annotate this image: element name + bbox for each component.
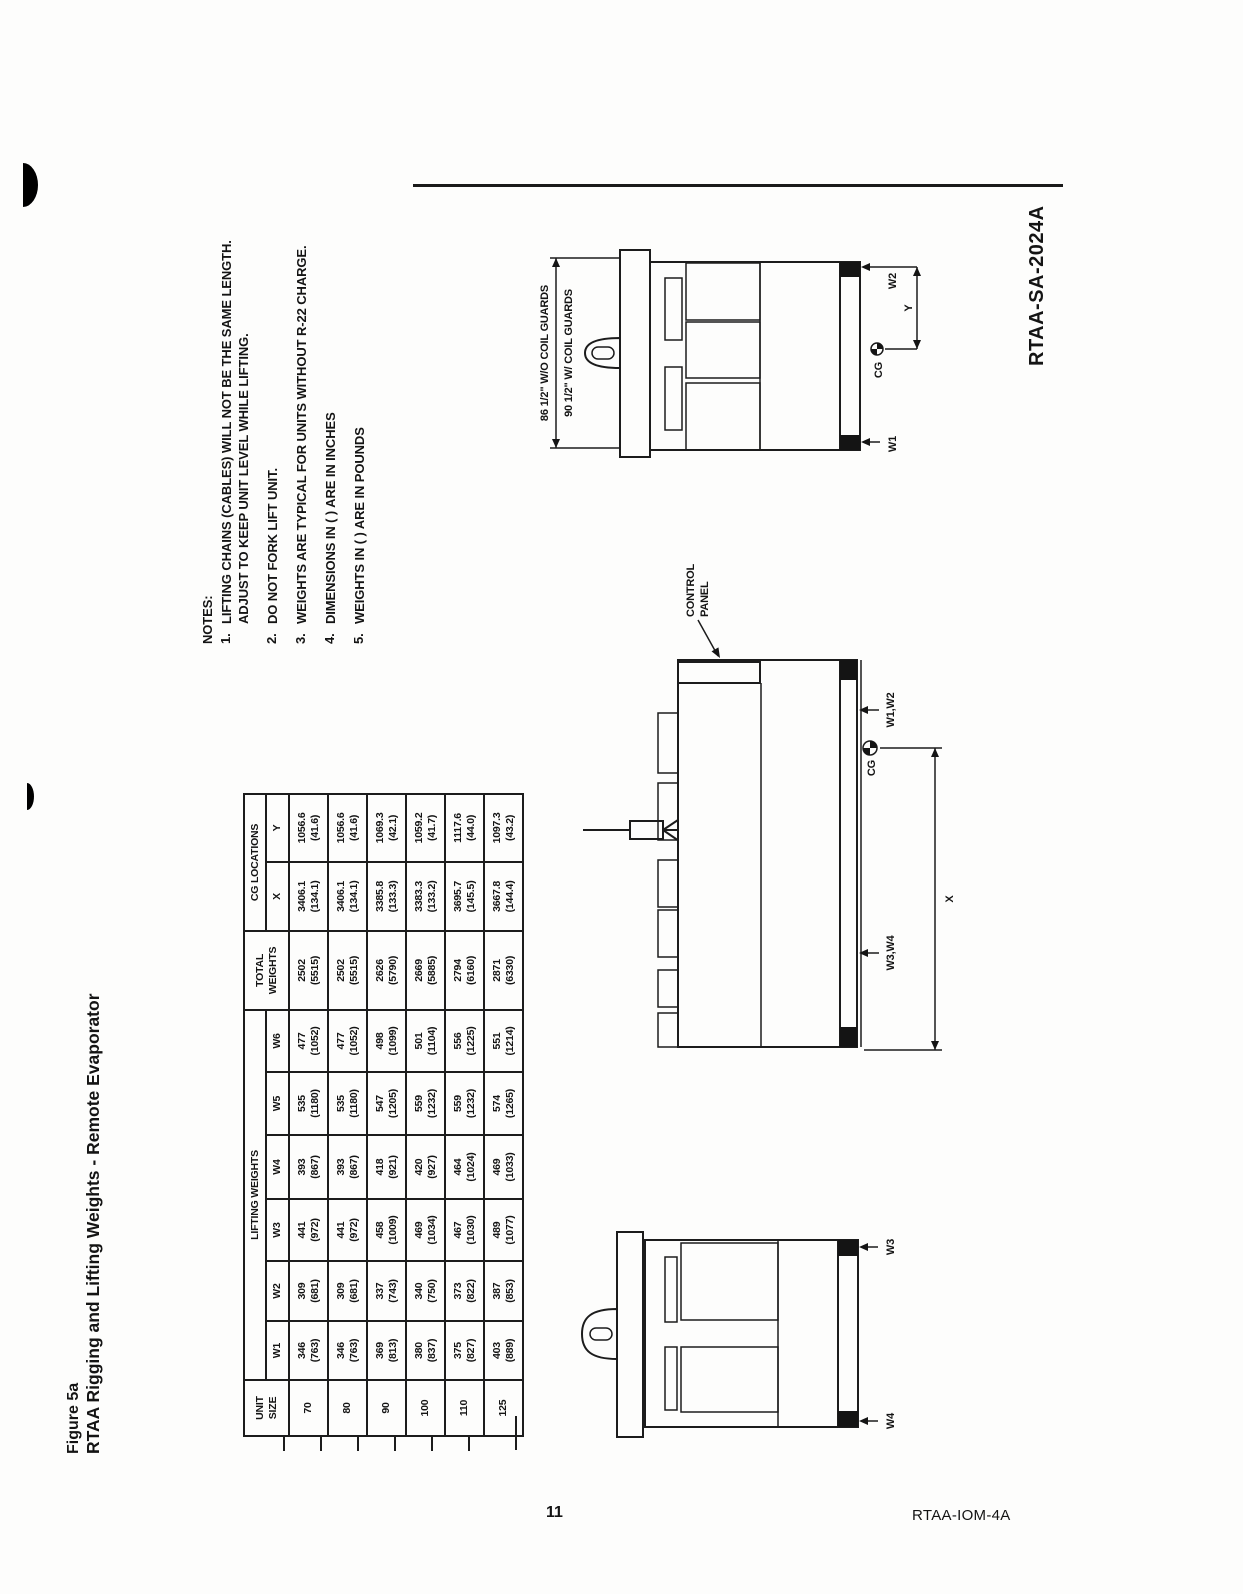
note-item: 2. DO NOT FORK LIFT UNIT. — [264, 184, 281, 644]
table-cell: 337 (743) — [367, 1261, 406, 1321]
base-rail — [840, 660, 857, 1047]
note-line: ADJUST TO KEEP UNIT LEVEL WHILE LIFTING. — [235, 240, 252, 624]
table-cell: 2502 (5515) — [289, 931, 328, 1010]
landscape-sheet: Figure 5a RTAA Rigging and Lifting Weigh… — [0, 0, 1243, 1594]
table-cell: 1056.6 (41.6) — [328, 794, 367, 862]
drawing-number: RTAA-SA-2024A — [1026, 205, 1049, 366]
table-cell: 441 (972) — [328, 1199, 367, 1261]
table-cell: 2669 (5885) — [406, 931, 445, 1010]
table-stub — [394, 1437, 396, 1451]
unit-size-cell: 80 — [328, 1380, 367, 1436]
table-cell: 2626 (5790) — [367, 931, 406, 1010]
table-cell: 420 (927) — [406, 1135, 445, 1199]
table-cell: 1056.6 (41.6) — [289, 794, 328, 862]
note-item: 5. WEIGHTS IN ( ) ARE IN POUNDS — [351, 184, 368, 644]
table-stub — [357, 1437, 359, 1451]
cg-label: CG — [873, 362, 885, 378]
table-cell: 369 (813) — [367, 1321, 406, 1380]
figure-number: Figure 5a — [64, 993, 83, 1454]
dim-with-guards-label: 90 1/2" W/ COIL GUARDS — [563, 289, 575, 417]
table-cell: 2871 (6330) — [484, 931, 523, 1010]
table-row: 100 380 (837) 340 (750) 469 (1034) 420 (… — [406, 794, 445, 1436]
manual-page: Figure 5a RTAA Rigging and Lifting Weigh… — [0, 0, 1243, 1594]
group-header-cg-locations: CG LOCATIONS — [244, 794, 266, 931]
lift-point-w3-label: W3 — [885, 1239, 897, 1255]
table-cell: 551 (1214) — [484, 1010, 523, 1072]
table-cell: 375 (827) — [445, 1321, 484, 1380]
table-cell: 340 (750) — [406, 1261, 445, 1321]
side-view-rigging-diagram: CONTROL PANEL W1,W2 W3,W4 CG — [548, 534, 978, 1104]
table-cell: 547 (1205) — [367, 1072, 406, 1135]
table-cell: 556 (1225) — [445, 1010, 484, 1072]
table-cell: 559 (1232) — [406, 1072, 445, 1135]
unit-side-body — [658, 660, 861, 1047]
unit-size-cell: 125 — [484, 1380, 523, 1436]
table-cell: 393 (867) — [328, 1135, 367, 1199]
table-cell: 458 (1009) — [367, 1199, 406, 1261]
control-panel-label: CONTROL — [685, 564, 697, 617]
col-header-w1: W1 — [266, 1321, 289, 1380]
note-line: DO NOT FORK LIFT UNIT. — [264, 468, 281, 624]
table-cell: 418 (921) — [367, 1135, 406, 1199]
col-header-unit-size: UNIT SIZE — [244, 1380, 289, 1436]
note-item: 4. DIMENSIONS IN ( ) ARE IN INCHES — [322, 184, 339, 644]
unit-size-cell: 110 — [445, 1380, 484, 1436]
table-row: 90 369 (813) 337 (743) 458 (1009) 418 (9… — [367, 794, 406, 1436]
col-header-total-weights: TOTAL WEIGHTS — [244, 931, 289, 1010]
table-cell: 489 (1077) — [484, 1199, 523, 1261]
table-cell: 3406.1 (134.1) — [328, 862, 367, 931]
end-view-rear-diagram: W3 W4 — [540, 1129, 920, 1469]
table-cell: 477 (1052) — [289, 1010, 328, 1072]
table-row: 70 346 (763) 309 (681) 441 (972) 393 (86… — [289, 794, 328, 1436]
lifting-weights-table-wrap: UNIT SIZE LIFTING WEIGHTS TOTAL WEIGHTS … — [243, 793, 524, 1437]
page-title: RTAA Rigging and Lifting Weights - Remot… — [83, 993, 104, 1454]
col-header-x: X — [266, 862, 289, 931]
note-item: 3. WEIGHTS ARE TYPICAL FOR UNITS WITHOUT… — [293, 184, 310, 644]
col-header-w4: W4 — [266, 1135, 289, 1199]
unit-size-cell: 100 — [406, 1380, 445, 1436]
cg-marker: CG — [871, 343, 885, 378]
notes-heading: NOTES: — [200, 184, 215, 644]
y-dimension-label: Y — [903, 304, 915, 312]
table-row: 80 346 (763) 309 (681) 441 (972) 393 (86… — [328, 794, 367, 1436]
control-panel-box — [678, 662, 760, 683]
table-cell: 346 (763) — [289, 1321, 328, 1380]
table-cell: 501 (1104) — [406, 1010, 445, 1072]
lift-point-w1w2-label: W1,W2 — [885, 692, 897, 727]
table-cell: 309 (681) — [328, 1261, 367, 1321]
table-cell: 3406.1 (134.1) — [289, 862, 328, 931]
table-cell: 346 (763) — [328, 1321, 367, 1380]
table-cell: 2794 (6160) — [445, 931, 484, 1010]
table-cell: 380 (837) — [406, 1321, 445, 1380]
unit-size-cell: 70 — [289, 1380, 328, 1436]
table-cell: 469 (1033) — [484, 1135, 523, 1199]
base-rail — [838, 1240, 858, 1427]
figure-title-block: Figure 5a RTAA Rigging and Lifting Weigh… — [64, 993, 104, 1454]
control-panel-callout: CONTROL PANEL — [685, 564, 723, 660]
note-line: WEIGHTS IN ( ) ARE IN POUNDS — [351, 427, 368, 624]
col-header-w2: W2 — [266, 1261, 289, 1321]
table-cell: 3385.8 (133.3) — [367, 862, 406, 931]
page-number: 11 — [546, 1504, 563, 1522]
cg-label: CG — [866, 760, 878, 776]
table-cell: 535 (1180) — [289, 1072, 328, 1135]
table-cell: 387 (853) — [484, 1261, 523, 1321]
dim-without-guards-label: 86 1/2" W/O COIL GUARDS — [539, 285, 551, 421]
table-stub — [431, 1437, 433, 1451]
table-cell: 498 (1099) — [367, 1010, 406, 1072]
table-cell: 403 (889) — [484, 1321, 523, 1380]
lift-point-w2-label: W2 — [887, 273, 899, 289]
table-stub — [515, 1416, 517, 1450]
x-dimension-label: X — [944, 895, 956, 903]
footer-document-ref: RTAA-IOM-4A — [912, 1507, 1011, 1524]
table-cell: 469 (1034) — [406, 1199, 445, 1261]
lifting-weights-table: UNIT SIZE LIFTING WEIGHTS TOTAL WEIGHTS … — [243, 793, 524, 1437]
lift-point-labels: W3 W4 — [859, 1239, 897, 1429]
table-cell: 559 (1232) — [445, 1072, 484, 1135]
note-item: 1. LIFTING CHAINS (CABLES) WILL NOT BE T… — [218, 184, 252, 644]
group-header-lifting-weights: LIFTING WEIGHTS — [244, 1010, 266, 1380]
note-line: LIFTING CHAINS (CABLES) WILL NOT BE THE … — [218, 240, 235, 624]
table-cell: 467 (1030) — [445, 1199, 484, 1261]
end-view-front-diagram: 86 1/2" W/O COIL GUARDS 90 1/2" W/ COIL … — [520, 204, 940, 474]
lift-point-labels: W1,W2 W3,W4 — [859, 692, 897, 970]
table-cell: 441 (972) — [289, 1199, 328, 1261]
table-stub — [283, 1437, 285, 1451]
table-cell: 309 (681) — [289, 1261, 328, 1321]
notes-block: NOTES: 1. LIFTING CHAINS (CABLES) WILL N… — [200, 184, 368, 644]
control-panel-label: PANEL — [699, 581, 711, 617]
cg-marker: CG — [863, 741, 878, 776]
col-header-w5: W5 — [266, 1072, 289, 1135]
table-cell: 1117.6 (44.0) — [445, 794, 484, 862]
table-cell: 477 (1052) — [328, 1010, 367, 1072]
x-dimension: X — [864, 748, 956, 1050]
table-cell: 535 (1180) — [328, 1072, 367, 1135]
col-header-y: Y — [266, 794, 289, 862]
lift-point-w1-label: W1 — [887, 436, 899, 452]
table-stub — [320, 1437, 322, 1451]
table-cell: 3667.8 (144.4) — [484, 862, 523, 931]
table-stub — [468, 1437, 470, 1451]
table-cell: 2502 (5515) — [328, 931, 367, 1010]
unit-end-body — [582, 1232, 858, 1437]
base-rail — [840, 262, 860, 450]
table-row: 125 403 (889) 387 (853) 489 (1077) 469 (… — [484, 794, 523, 1436]
table-cell: 1069.3 (42.1) — [367, 794, 406, 862]
table-cell: 3383.3 (133.2) — [406, 862, 445, 931]
note-line: DIMENSIONS IN ( ) ARE IN INCHES — [322, 412, 339, 624]
table-cell: 574 (1265) — [484, 1072, 523, 1135]
lift-point-w3w4-label: W3,W4 — [885, 934, 897, 970]
table-cell: 464 (1024) — [445, 1135, 484, 1199]
table-row: 110 375 (827) 373 (822) 467 (1030) 464 (… — [445, 794, 484, 1436]
table-cell: 393 (867) — [289, 1135, 328, 1199]
table-cell: 1059.2 (41.7) — [406, 794, 445, 862]
table-cell: 3695.7 (145.5) — [445, 862, 484, 931]
unit-end-body — [585, 250, 860, 457]
unit-size-cell: 90 — [367, 1380, 406, 1436]
col-header-w3: W3 — [266, 1199, 289, 1261]
table-cell: 1097.3 (43.2) — [484, 794, 523, 862]
col-header-w6: W6 — [266, 1010, 289, 1072]
note-line: WEIGHTS ARE TYPICAL FOR UNITS WITHOUT R-… — [293, 245, 310, 624]
lift-point-w4-label: W4 — [885, 1412, 897, 1429]
table-cell: 373 (822) — [445, 1261, 484, 1321]
lift-point-labels: W1 W2 — [861, 263, 917, 452]
